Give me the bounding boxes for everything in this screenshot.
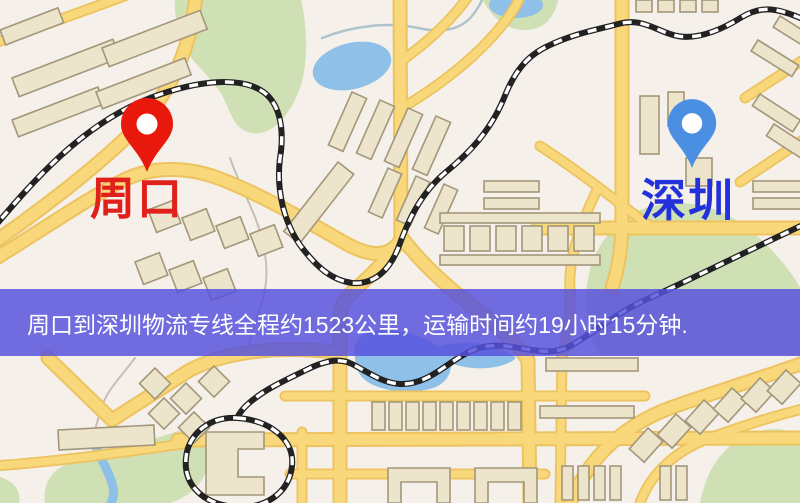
route-info-text: 周口到深圳物流专线全程约1523公里，运输时间约19小时15分钟. <box>0 306 688 340</box>
map-artwork <box>0 0 800 503</box>
map-screenshot: 周口 深圳 周口到深圳物流专线全程约1523公里，运输时间约19小时15分钟. <box>0 0 800 503</box>
origin-city-label: 周口 <box>90 176 184 221</box>
pin-hole <box>137 114 158 135</box>
destination-city-label: 深圳 <box>641 178 735 223</box>
route-info-banner: 周口到深圳物流专线全程约1523公里，运输时间约19小时15分钟. <box>0 289 800 356</box>
pin-hole <box>682 113 702 133</box>
